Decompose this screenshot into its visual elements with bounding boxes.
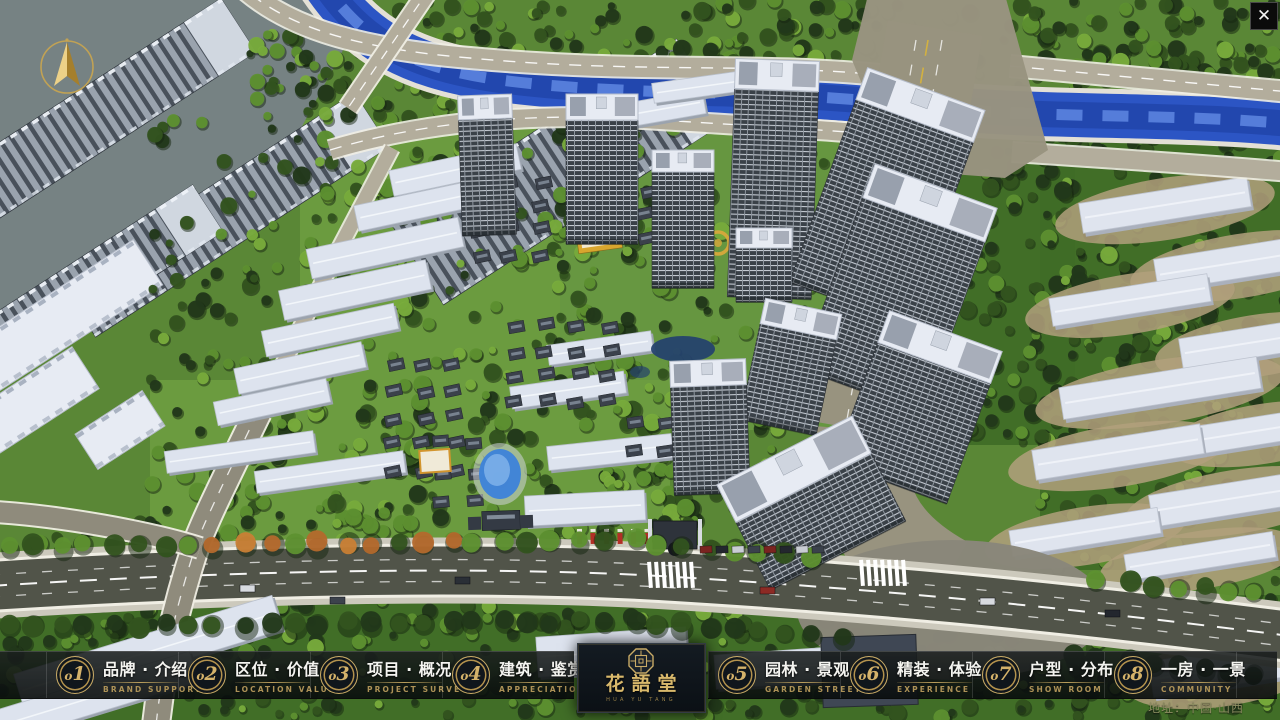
- menu-label: 精装 · 体验: [897, 656, 972, 680]
- menu-label: 建筑 · 鉴赏: [499, 656, 574, 680]
- logo-panel[interactable]: 花語堂 HUA YU TANG: [577, 643, 706, 713]
- menu-item-project[interactable]: o3 项目 · 概况PROJECT SURVEY: [310, 652, 442, 698]
- menu-number-badge-3: o3: [320, 656, 358, 694]
- gold-rule: [765, 682, 840, 683]
- menu-number-badge-4: o4: [452, 656, 490, 694]
- menu-sublabel: EXPERIENCE: [897, 685, 972, 694]
- menu-number-badge-1: o1: [56, 656, 94, 694]
- menu-item-interior[interactable]: o6 精装 · 体验EXPERIENCE: [840, 652, 972, 698]
- gold-rule: [897, 682, 972, 683]
- menu-item-location[interactable]: o2 区位 · 价值LOCATION VALUE: [178, 652, 310, 698]
- menu-item-room-view[interactable]: o8 一房 · 一景COMMUNITY: [1104, 652, 1236, 698]
- menu-label: 品牌 · 介绍: [103, 656, 178, 680]
- menu-sublabel: PROJECT SURVEY: [367, 685, 442, 694]
- address-text: 地址：中国·山西: [1148, 699, 1244, 716]
- menu-sublabel: LOCATION VALUE: [235, 685, 310, 694]
- menu-number-badge-8: o8: [1114, 656, 1152, 694]
- menu-item-garden[interactable]: o5 园林 · 景观GARDEN STREET: [708, 652, 840, 698]
- nav-left-segment: o1 品牌 · 介绍BRAND SUPPORT o2 区位 · 价值LOCATI…: [0, 651, 574, 699]
- gold-rule: [1161, 682, 1236, 683]
- menu-number-badge-6: o6: [850, 656, 888, 694]
- menu-label: 区位 · 价值: [235, 656, 310, 680]
- menu-sublabel: APPRECIATION: [499, 685, 574, 694]
- presentation-stage: ✕ o1 品牌 · 介绍BRAND SUPPORT o2 区位 · 价值LOCA…: [0, 0, 1280, 720]
- menu-label: 一房 · 一景: [1161, 656, 1236, 680]
- logo-caption: HUA YU TANG: [606, 697, 676, 703]
- close-button[interactable]: ✕: [1250, 2, 1278, 30]
- menu-number-badge-2: o2: [188, 656, 226, 694]
- gold-rule: [499, 682, 574, 683]
- logo-title: 花語堂: [598, 674, 683, 695]
- seal-icon: [628, 648, 654, 674]
- menu-item-architecture[interactable]: o4 建筑 · 鉴赏APPRECIATION: [442, 652, 574, 698]
- gold-rule: [103, 682, 178, 683]
- menu-number-badge-5: o5: [718, 656, 756, 694]
- gold-rule: [1029, 682, 1104, 683]
- menu-sublabel: COMMUNITY: [1161, 685, 1236, 694]
- menu-label: 户型 · 分布: [1029, 656, 1104, 680]
- menu-label: 项目 · 概况: [367, 656, 442, 680]
- menu-label: 园林 · 景观: [765, 656, 840, 680]
- aerial-render-view[interactable]: [0, 0, 1280, 720]
- menu-sublabel: GARDEN STREET: [765, 685, 840, 694]
- menu-sublabel: BRAND SUPPORT: [103, 685, 178, 694]
- nav-right-segment: o5 园林 · 景观GARDEN STREET o6 精装 · 体验EXPERI…: [708, 651, 1277, 699]
- aerial-render-svg: [0, 0, 1280, 720]
- menu-number-badge-7: o7: [982, 656, 1020, 694]
- gold-rule: [235, 682, 310, 683]
- menu-item-floorplan[interactable]: o7 户型 · 分布SHOW ROOM: [972, 652, 1104, 698]
- menu-item-brand[interactable]: o1 品牌 · 介绍BRAND SUPPORT: [46, 652, 178, 698]
- menu-sublabel: SHOW ROOM: [1029, 685, 1104, 694]
- gold-rule: [367, 682, 442, 683]
- bottom-nav: o1 品牌 · 介绍BRAND SUPPORT o2 区位 · 价值LOCATI…: [0, 651, 1280, 699]
